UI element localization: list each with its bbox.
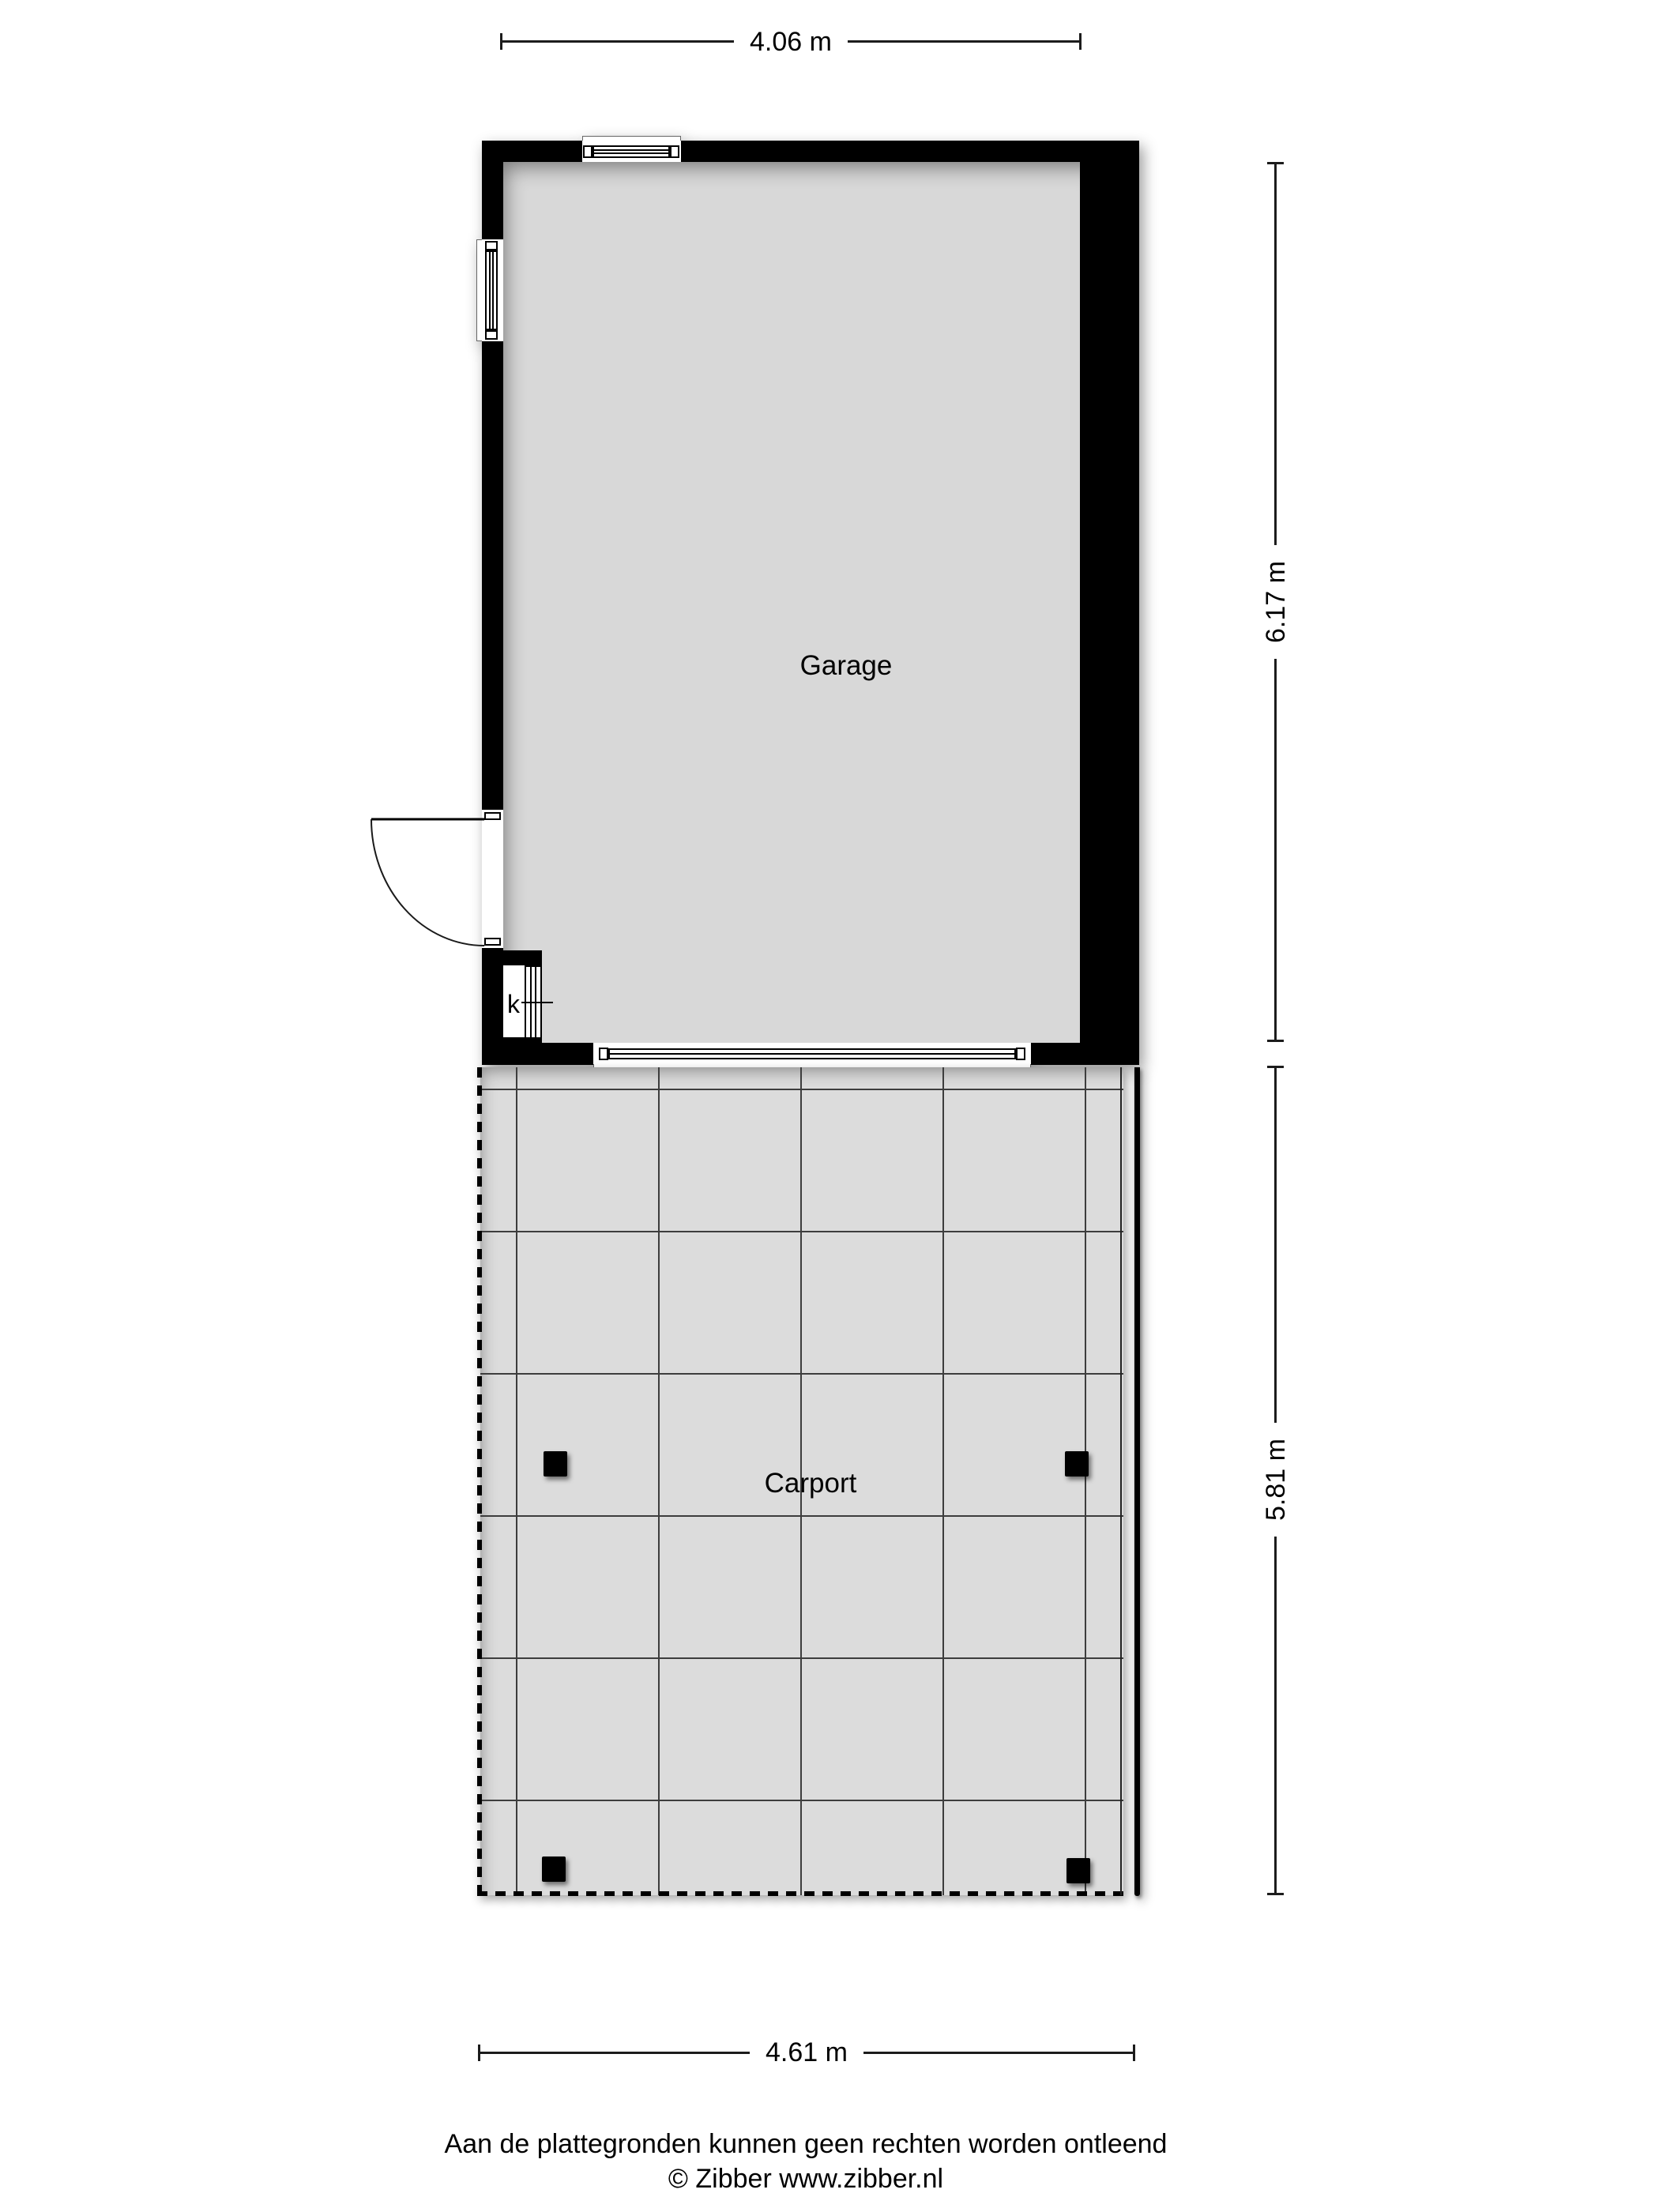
dimension-tick xyxy=(1133,2045,1135,2061)
carport-grid-line xyxy=(516,1067,517,1895)
dimension-tick xyxy=(500,33,502,50)
carport-grid-line xyxy=(480,1515,1123,1517)
carport-grid-line xyxy=(480,1800,1123,1801)
carport-grid-line xyxy=(1085,1067,1086,1895)
carport-grid-line xyxy=(480,1231,1123,1232)
dimension-tick xyxy=(1267,162,1284,164)
dimension-tick xyxy=(1267,1893,1284,1895)
footer-disclaimer: Aan de plattegronden kunnen geen rechten… xyxy=(0,2127,1612,2161)
carport-boundary-right xyxy=(1134,1067,1140,1896)
dimension-tick xyxy=(478,2045,480,2061)
dimension-label-carport-depth: 5.81 m xyxy=(1260,1423,1292,1537)
dimension-tick xyxy=(1267,1066,1284,1068)
carport-grid-line xyxy=(480,1657,1123,1659)
dimension-label-carport-width: 4.61 m xyxy=(750,2037,863,2068)
floorplan-page: 4.06 m 6.17 m 5.81 m 4.61 m Garage Carpo… xyxy=(0,0,1659,2212)
dimension-label-garage-depth: 6.17 m xyxy=(1260,545,1292,659)
closet-label: k xyxy=(507,991,520,1018)
carport-edge-line xyxy=(1120,1067,1122,1895)
carport-grid-line xyxy=(480,1089,1123,1090)
footer-credit: © Zibber www.zibber.nl xyxy=(0,2161,1612,2196)
carport-post xyxy=(542,1856,566,1882)
carport-structure xyxy=(0,0,1659,2212)
garage-label: Garage xyxy=(800,651,893,681)
carport-grid-line xyxy=(942,1067,944,1895)
dimension-label-garage-width: 4.06 m xyxy=(734,26,848,58)
footer: Aan de plattegronden kunnen geen rechten… xyxy=(0,2127,1612,2196)
carport-boundary-left-dashed xyxy=(477,1067,482,1895)
carport-post xyxy=(1066,1858,1090,1883)
carport-grid-line xyxy=(658,1067,660,1895)
carport-boundary-bottom-dashed xyxy=(477,1891,1130,1896)
dimension-tick xyxy=(1079,33,1082,50)
carport-label: Carport xyxy=(765,1469,857,1499)
closet-label-leader-line xyxy=(521,1002,553,1003)
carport-post xyxy=(1065,1451,1089,1477)
carport-post xyxy=(544,1451,567,1477)
carport-grid-line xyxy=(480,1373,1123,1375)
dimension-tick xyxy=(1267,1040,1284,1042)
